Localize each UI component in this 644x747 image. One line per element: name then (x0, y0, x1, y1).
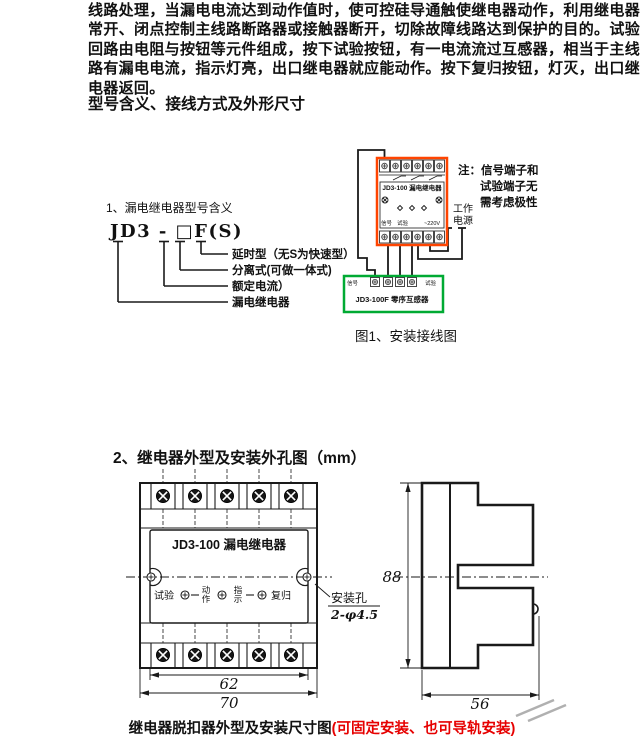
relay-voltage-label: ~220V (424, 221, 440, 227)
note-line3: 需考虑极性 (480, 195, 538, 209)
section1-heading: 型号含义、接线方式及外形尺寸 (88, 92, 305, 114)
dim-56: 56 (470, 695, 490, 713)
relay-signal-label: 信号 (381, 219, 393, 227)
dim-70: 70 (219, 694, 239, 712)
front-label-action-2: 作 (202, 594, 211, 604)
side-view: 88 56 (382, 483, 566, 721)
mount-hole-label-2: 2-φ4.5 (330, 607, 378, 622)
wiring-diagram: JD3-100 漏电继电器 信号 试验 ~220V 注：信号端子和 试验端子无 … (338, 138, 644, 356)
model-code: JD3 - □F(S) (108, 221, 243, 242)
side-dim-height-lines (400, 483, 422, 668)
relay-test-label: 试验 (397, 219, 409, 227)
mount-hole-label-1: 安装孔 (331, 590, 367, 605)
dim-62: 62 (219, 675, 238, 693)
front-label-indicate-2: 示 (234, 594, 243, 604)
model-label-separate: 分离式(可做一体式) (232, 263, 332, 277)
model-meaning-title: 1、漏电继电器型号含义 (106, 200, 233, 215)
model-label-delay: 延时型（无S为快速型） (231, 247, 355, 261)
ct-signal-label: 信号 (347, 279, 359, 287)
ct-title: JD3-100F 零序互感器 (356, 294, 429, 304)
front-device-title: JD3-100 漏电继电器 (172, 537, 286, 552)
side-profile (422, 483, 533, 668)
model-label-relay: 漏电继电器 (232, 295, 290, 309)
model-label-rated-current: 额定电流） (232, 279, 290, 293)
power-label-line2: 电源 (453, 214, 473, 227)
front-view: JD3-100 漏电继电器 试验 动 作 指 示 复归 62 70 (126, 469, 380, 712)
front-label-reset: 复归 (271, 589, 291, 602)
note-line1: 注：信号端子和 (458, 163, 539, 177)
intro-paragraph: 线路处理，当漏电电流达到动作值时，使可控硅导通触使继电器动作，利用继电器常开、闭… (88, 1, 640, 98)
ct-test-label: 试验 (425, 279, 437, 287)
bottom-caption: 继电器脱扣器外型及安装尺寸图(可固定安装、也可导轨安装) (0, 717, 644, 738)
relay-title: JD3-100 漏电继电器 (382, 183, 442, 192)
figure1-caption: 图1、安装接线图 (355, 328, 457, 344)
note-line2: 试验端子无 (480, 179, 538, 193)
model-tree-lines (113, 242, 228, 303)
bottom-caption-red: (可固定安装、也可导轨安装) (332, 721, 516, 737)
bottom-caption-main: 继电器脱扣器外型及安装尺寸图 (129, 721, 332, 737)
outline-drawing: JD3-100 漏电继电器 试验 动 作 指 示 复归 62 70 (118, 458, 590, 732)
power-label-line1: 工作 (453, 203, 473, 215)
front-label-test: 试验 (154, 589, 174, 602)
